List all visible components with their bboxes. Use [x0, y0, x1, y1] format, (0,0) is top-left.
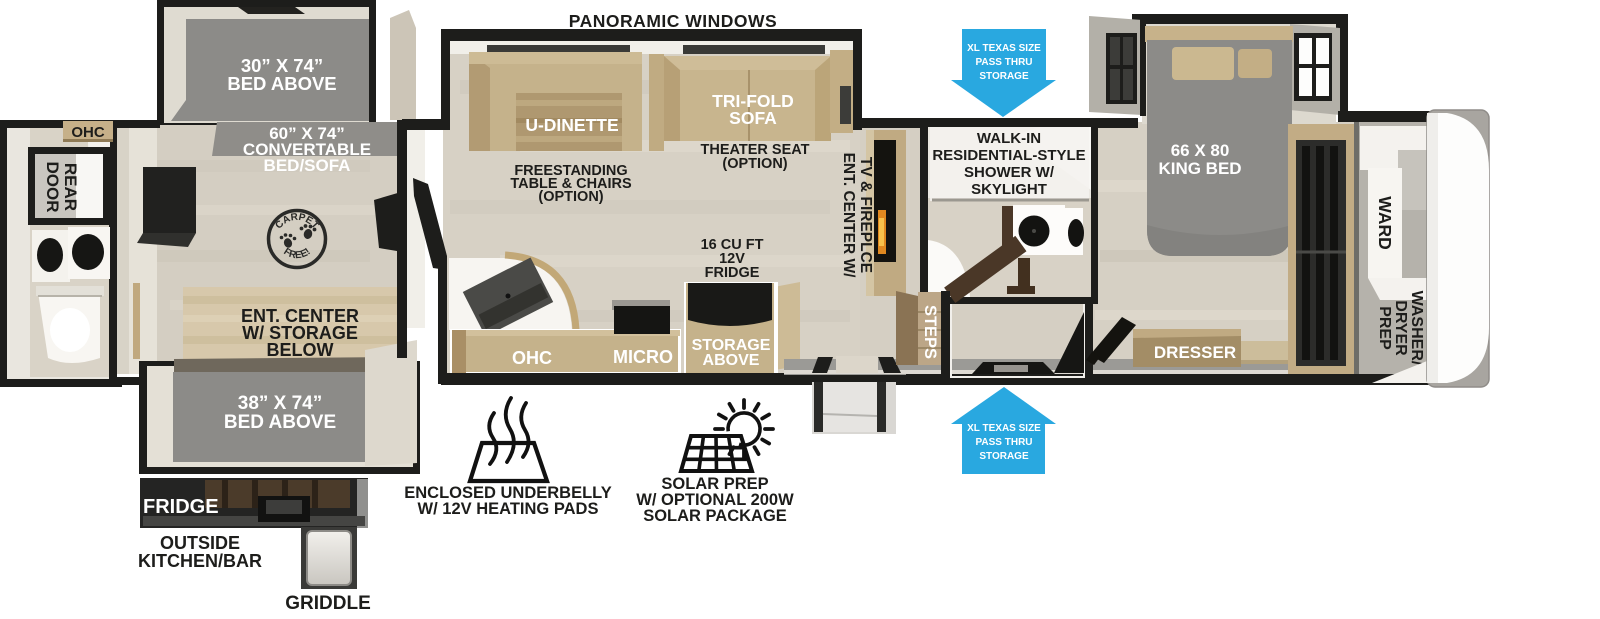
svg-text:BED ABOVE: BED ABOVE: [227, 73, 336, 94]
svg-text:GRIDDLE: GRIDDLE: [285, 593, 371, 614]
svg-text:W/ 12V HEATING PADS: W/ 12V HEATING PADS: [418, 500, 599, 518]
svg-text:STORAGE: STORAGE: [979, 451, 1029, 462]
svg-text:PASS THRU: PASS THRU: [975, 437, 1032, 448]
svg-text:PASS THRU: PASS THRU: [975, 57, 1032, 68]
svg-text:PANORAMIC WINDOWS: PANORAMIC WINDOWS: [569, 11, 777, 31]
svg-text:RESIDENTIAL-STYLE: RESIDENTIAL-STYLE: [932, 147, 1085, 164]
svg-text:DOOR: DOOR: [43, 162, 62, 213]
svg-text:WASHER/: WASHER/: [1408, 291, 1425, 366]
svg-text:DRYER: DRYER: [1392, 300, 1409, 356]
svg-text:FRIDGE: FRIDGE: [143, 496, 219, 518]
svg-text:KITCHEN/BAR: KITCHEN/BAR: [138, 551, 262, 571]
svg-text:REAR: REAR: [61, 163, 80, 211]
svg-text:OHC: OHC: [512, 348, 552, 368]
svg-text:OUTSIDE: OUTSIDE: [160, 533, 240, 553]
svg-text:PREP: PREP: [1376, 306, 1393, 350]
svg-text:KING BED: KING BED: [1158, 159, 1241, 178]
svg-text:WARD: WARD: [1375, 196, 1395, 249]
svg-text:MICRO: MICRO: [613, 347, 673, 367]
svg-text:BED/SOFA: BED/SOFA: [264, 156, 351, 175]
svg-text:(OPTION): (OPTION): [538, 189, 603, 205]
svg-text:SOFA: SOFA: [729, 108, 777, 128]
svg-text:BED ABOVE: BED ABOVE: [224, 412, 336, 433]
svg-text:38” X 74”: 38” X 74”: [238, 393, 323, 414]
svg-text:WALK-IN: WALK-IN: [977, 130, 1041, 147]
svg-text:DRESSER: DRESSER: [1154, 343, 1236, 362]
svg-text:OHC: OHC: [71, 124, 105, 141]
svg-text:XL TEXAS SIZE: XL TEXAS SIZE: [967, 423, 1041, 434]
svg-text:STORAGE: STORAGE: [979, 71, 1029, 82]
svg-text:FRIDGE: FRIDGE: [705, 265, 760, 281]
svg-text:STEPS: STEPS: [921, 305, 939, 359]
svg-text:XL TEXAS SIZE: XL TEXAS SIZE: [967, 43, 1041, 54]
svg-text:(OPTION): (OPTION): [722, 156, 787, 172]
svg-text:SHOWER W/: SHOWER W/: [964, 164, 1055, 181]
svg-text:ABOVE: ABOVE: [703, 352, 760, 369]
svg-text:SKYLIGHT: SKYLIGHT: [971, 181, 1047, 198]
svg-text:BELOW: BELOW: [267, 340, 334, 360]
svg-text:ENT. CENTER W/: ENT. CENTER W/: [840, 153, 857, 279]
svg-text:SOLAR PACKAGE: SOLAR PACKAGE: [643, 507, 787, 525]
svg-text:U-DINETTE: U-DINETTE: [525, 115, 618, 135]
svg-text:TV & FIREPLCE: TV & FIREPLCE: [857, 157, 874, 273]
svg-text:66 X 80: 66 X 80: [1171, 141, 1230, 160]
